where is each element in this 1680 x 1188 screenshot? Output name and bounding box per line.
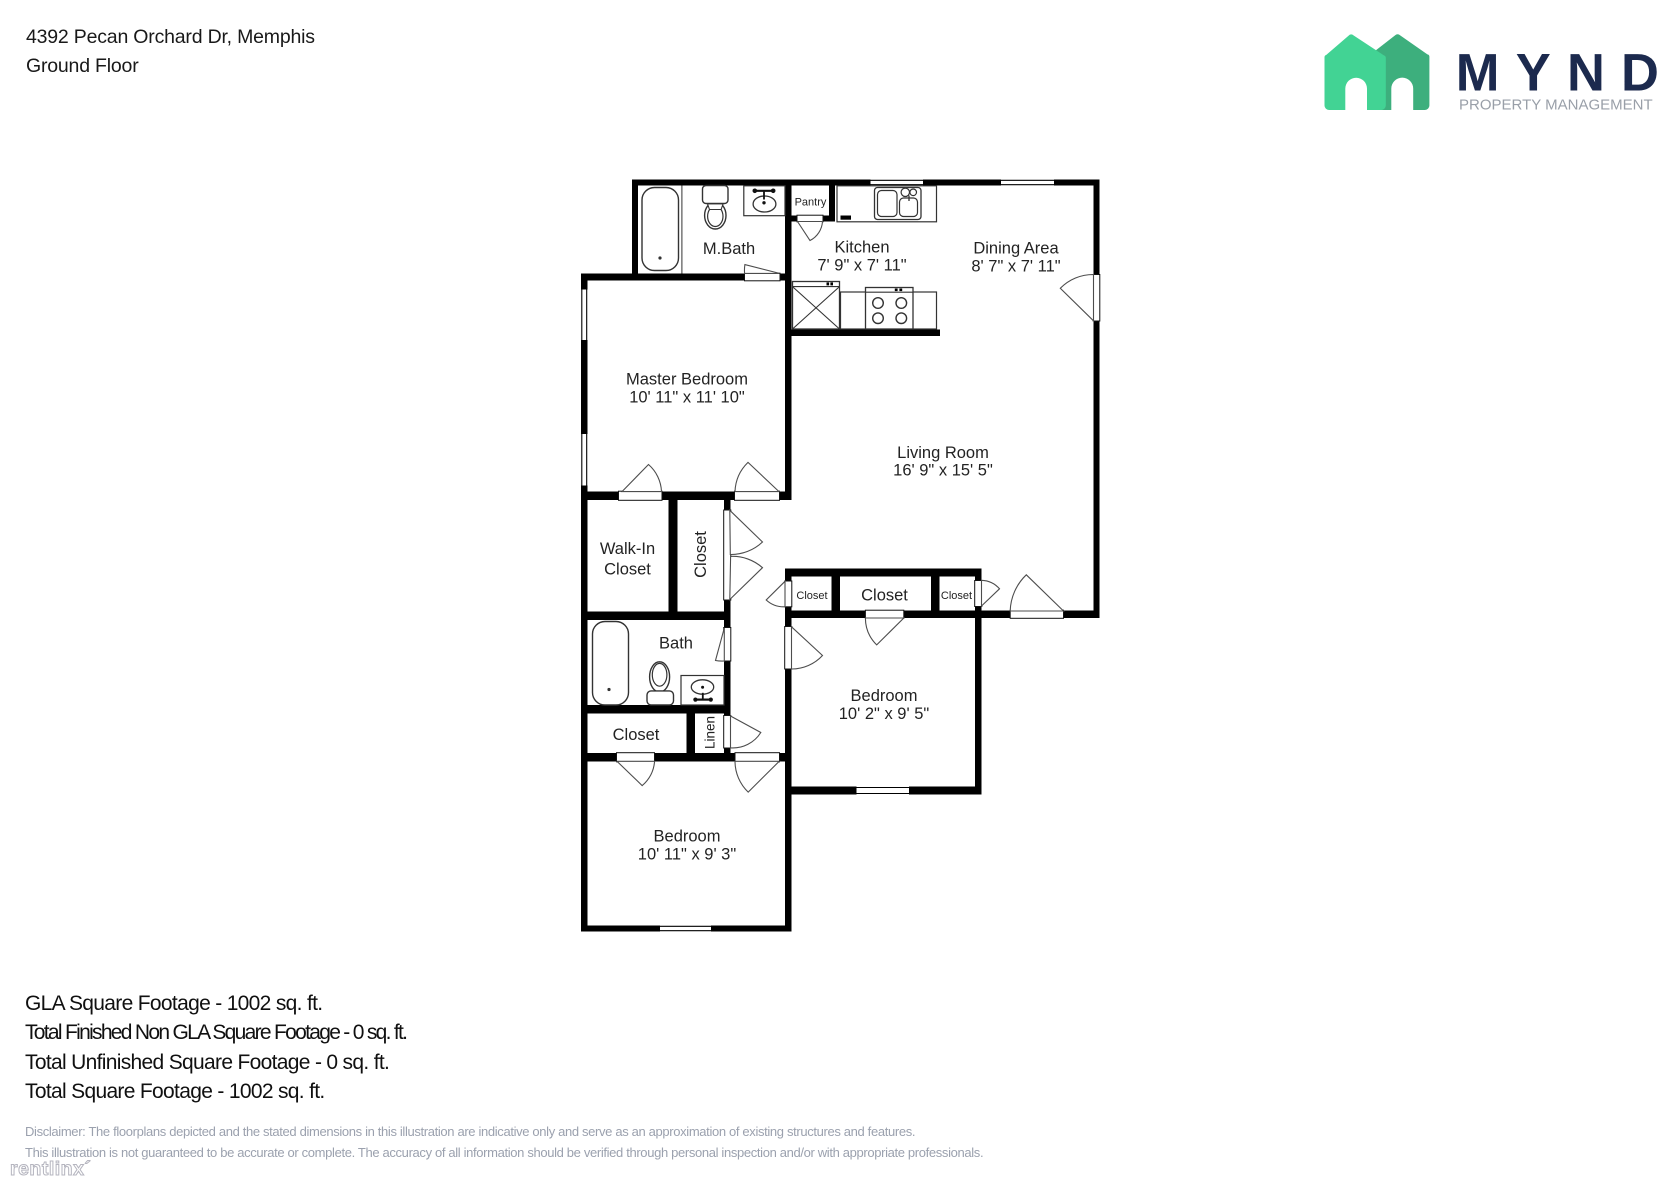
- svg-text:Closet: Closet: [941, 590, 972, 602]
- svg-text:Closet: Closet: [604, 561, 651, 579]
- svg-text:Kitchen: Kitchen: [834, 239, 889, 257]
- svg-text:M.Bath: M.Bath: [703, 240, 755, 258]
- svg-text:Closet: Closet: [613, 726, 660, 744]
- svg-text:Bedroom: Bedroom: [654, 828, 721, 846]
- svg-text:Closet: Closet: [796, 590, 827, 602]
- svg-text:Closet: Closet: [861, 587, 908, 605]
- svg-text:Dining Area: Dining Area: [973, 240, 1059, 258]
- svg-text:Master Bedroom: Master Bedroom: [626, 371, 748, 389]
- svg-text:Bath: Bath: [659, 635, 693, 653]
- svg-text:10' 11" x 9' 3": 10' 11" x 9' 3": [638, 846, 737, 864]
- svg-text:16' 9" x 15' 5": 16' 9" x 15' 5": [893, 462, 993, 480]
- svg-text:Walk-In: Walk-In: [600, 540, 655, 558]
- svg-text:8' 7" x 7' 11": 8' 7" x 7' 11": [971, 258, 1060, 276]
- svg-text:Pantry: Pantry: [795, 197, 827, 209]
- svg-text:Linen: Linen: [703, 716, 718, 749]
- svg-text:Living Room: Living Room: [897, 444, 989, 462]
- svg-text:Closet: Closet: [692, 531, 710, 578]
- svg-text:7' 9" x 7' 11": 7' 9" x 7' 11": [817, 257, 906, 275]
- svg-text:Bedroom: Bedroom: [851, 687, 918, 705]
- svg-text:10' 11" x 11' 10": 10' 11" x 11' 10": [629, 389, 745, 407]
- svg-text:10' 2" x 9' 5": 10' 2" x 9' 5": [839, 705, 930, 723]
